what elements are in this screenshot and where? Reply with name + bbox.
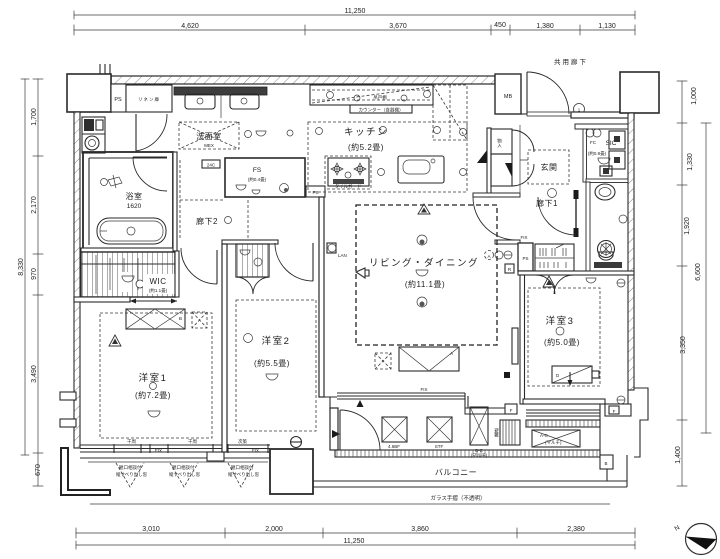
svg-text:FIX: FIX: [252, 448, 259, 453]
svg-text:(約11.1畳): (約11.1畳): [405, 279, 445, 289]
svg-text:観口相談付: 観口相談付: [172, 464, 195, 471]
svg-text:タイルガード: タイルガード: [335, 183, 362, 190]
svg-text:FIX: FIX: [420, 387, 427, 392]
svg-text:FS: FS: [253, 167, 262, 174]
svg-text:1,000: 1,000: [691, 87, 698, 105]
svg-text:(約0.9畳): (約0.9畳): [588, 150, 607, 157]
svg-text:玄関: 玄関: [541, 162, 558, 172]
svg-text:MEX: MEX: [204, 143, 214, 148]
svg-text:WIC: WIC: [149, 277, 166, 286]
svg-text:970: 970: [31, 268, 38, 280]
svg-text:3,350: 3,350: [680, 336, 687, 354]
svg-text:PS: PS: [522, 256, 528, 261]
svg-text:洋室2: 洋室2: [262, 335, 291, 347]
svg-text:B: B: [179, 316, 182, 321]
svg-text:3,010: 3,010: [142, 526, 160, 533]
svg-text:STF: STF: [435, 444, 444, 449]
svg-text:(約0.4畳): (約0.4畳): [248, 176, 267, 183]
svg-text:リネン庫: リネン庫: [138, 96, 160, 103]
svg-text:1,130: 1,130: [598, 23, 616, 30]
svg-text:ガラス手摺（不透明）: ガラス手摺（不透明）: [431, 494, 486, 502]
svg-text:11,250: 11,250: [345, 8, 366, 15]
svg-text:観口相談付: 観口相談付: [119, 464, 142, 471]
svg-text:24C: 24C: [207, 163, 216, 168]
svg-text:(約5.5畳): (約5.5畳): [254, 358, 290, 368]
svg-text:縦すべり出し窓: 縦すべり出し窓: [116, 471, 148, 478]
svg-text:4.6BF: 4.6BF: [388, 444, 400, 449]
svg-text:A: A: [450, 351, 453, 356]
svg-text:LAN: LAN: [338, 253, 347, 258]
svg-text:物入: 物入: [497, 137, 503, 148]
svg-text:3,670: 3,670: [389, 23, 407, 30]
svg-text:PS: PS: [114, 97, 122, 103]
svg-text:共用廊下: 共用廊下: [554, 57, 588, 66]
svg-text:8,330: 8,330: [18, 258, 25, 276]
svg-text:避難: 避難: [494, 427, 500, 439]
svg-text:FC: FC: [590, 140, 597, 145]
svg-text:バルコニー: バルコニー: [435, 468, 477, 477]
svg-text:B: B: [604, 461, 607, 466]
svg-text:4,620: 4,620: [181, 23, 199, 30]
svg-text:次策: 次策: [238, 438, 247, 445]
svg-text:A-C: A-C: [540, 433, 549, 438]
svg-text:2,170: 2,170: [31, 196, 38, 214]
svg-text:6,600: 6,600: [695, 263, 702, 281]
svg-text:1620: 1620: [127, 203, 142, 210]
svg-text:11,250: 11,250: [344, 538, 365, 545]
svg-text:リビング・ダイニング: リビング・ダイニング: [369, 257, 479, 269]
svg-text:(約5.2畳): (約5.2畳): [348, 142, 384, 152]
svg-text:1,700: 1,700: [31, 108, 38, 126]
svg-text:3,860: 3,860: [411, 526, 429, 533]
svg-text:A: A: [487, 254, 490, 259]
svg-text:2,380: 2,380: [567, 526, 585, 533]
svg-text:F: F: [613, 409, 616, 414]
svg-text:浴室: 浴室: [126, 191, 143, 201]
svg-text:廊下2: 廊下2: [196, 216, 218, 226]
svg-text:FIX: FIX: [520, 235, 527, 240]
svg-text:MB: MB: [504, 94, 513, 100]
svg-text:(約1.1畳): (約1.1畳): [149, 287, 168, 294]
svg-text:1,380: 1,380: [536, 23, 554, 30]
svg-text:F: F: [510, 408, 513, 413]
svg-text:450: 450: [494, 22, 506, 29]
svg-text:吊戸棚: 吊戸棚: [373, 94, 387, 101]
svg-text:(約7.2畳): (約7.2畳): [135, 390, 171, 400]
svg-text:1,330: 1,330: [687, 153, 694, 171]
svg-text:1,400: 1,400: [675, 446, 682, 464]
svg-text:1,920: 1,920: [684, 217, 691, 235]
svg-text:カウンター（食器棚）: カウンター（食器棚）: [359, 107, 404, 114]
svg-text:(約5.0畳): (約5.0畳): [544, 337, 580, 347]
svg-text:670: 670: [35, 464, 42, 476]
svg-text:キッチン: キッチン: [344, 127, 388, 138]
svg-text:3,490: 3,490: [31, 365, 38, 383]
svg-text:FIX: FIX: [155, 448, 162, 453]
svg-text:縦すべり出し窓: 縦すべり出し窓: [169, 471, 201, 478]
svg-text:2,000: 2,000: [265, 526, 283, 533]
svg-text:洗面室: 洗面室: [196, 131, 222, 141]
svg-text:洋室3: 洋室3: [546, 315, 575, 327]
svg-text:PS: PS: [312, 190, 318, 195]
